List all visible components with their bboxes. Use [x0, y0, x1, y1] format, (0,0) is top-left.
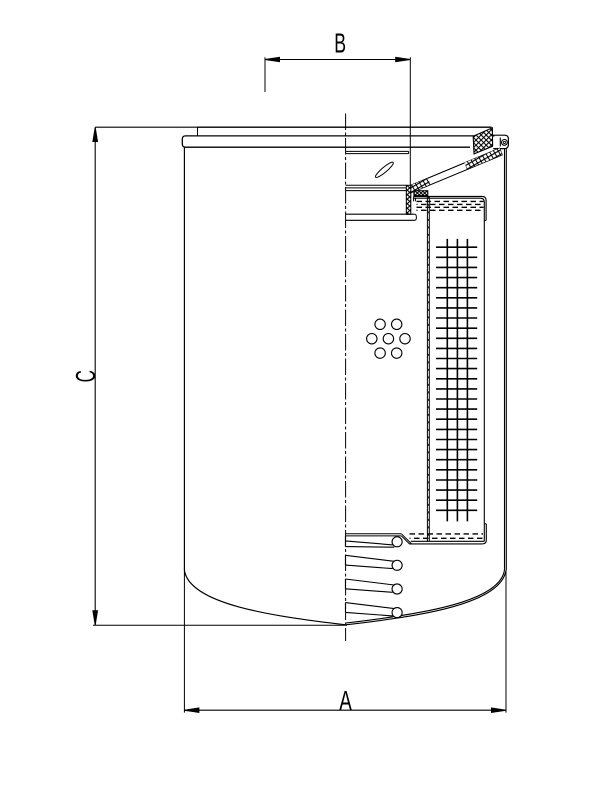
svg-text:A: A — [339, 685, 352, 716]
svg-text:B: B — [334, 27, 346, 58]
svg-text:C: C — [70, 370, 101, 382]
